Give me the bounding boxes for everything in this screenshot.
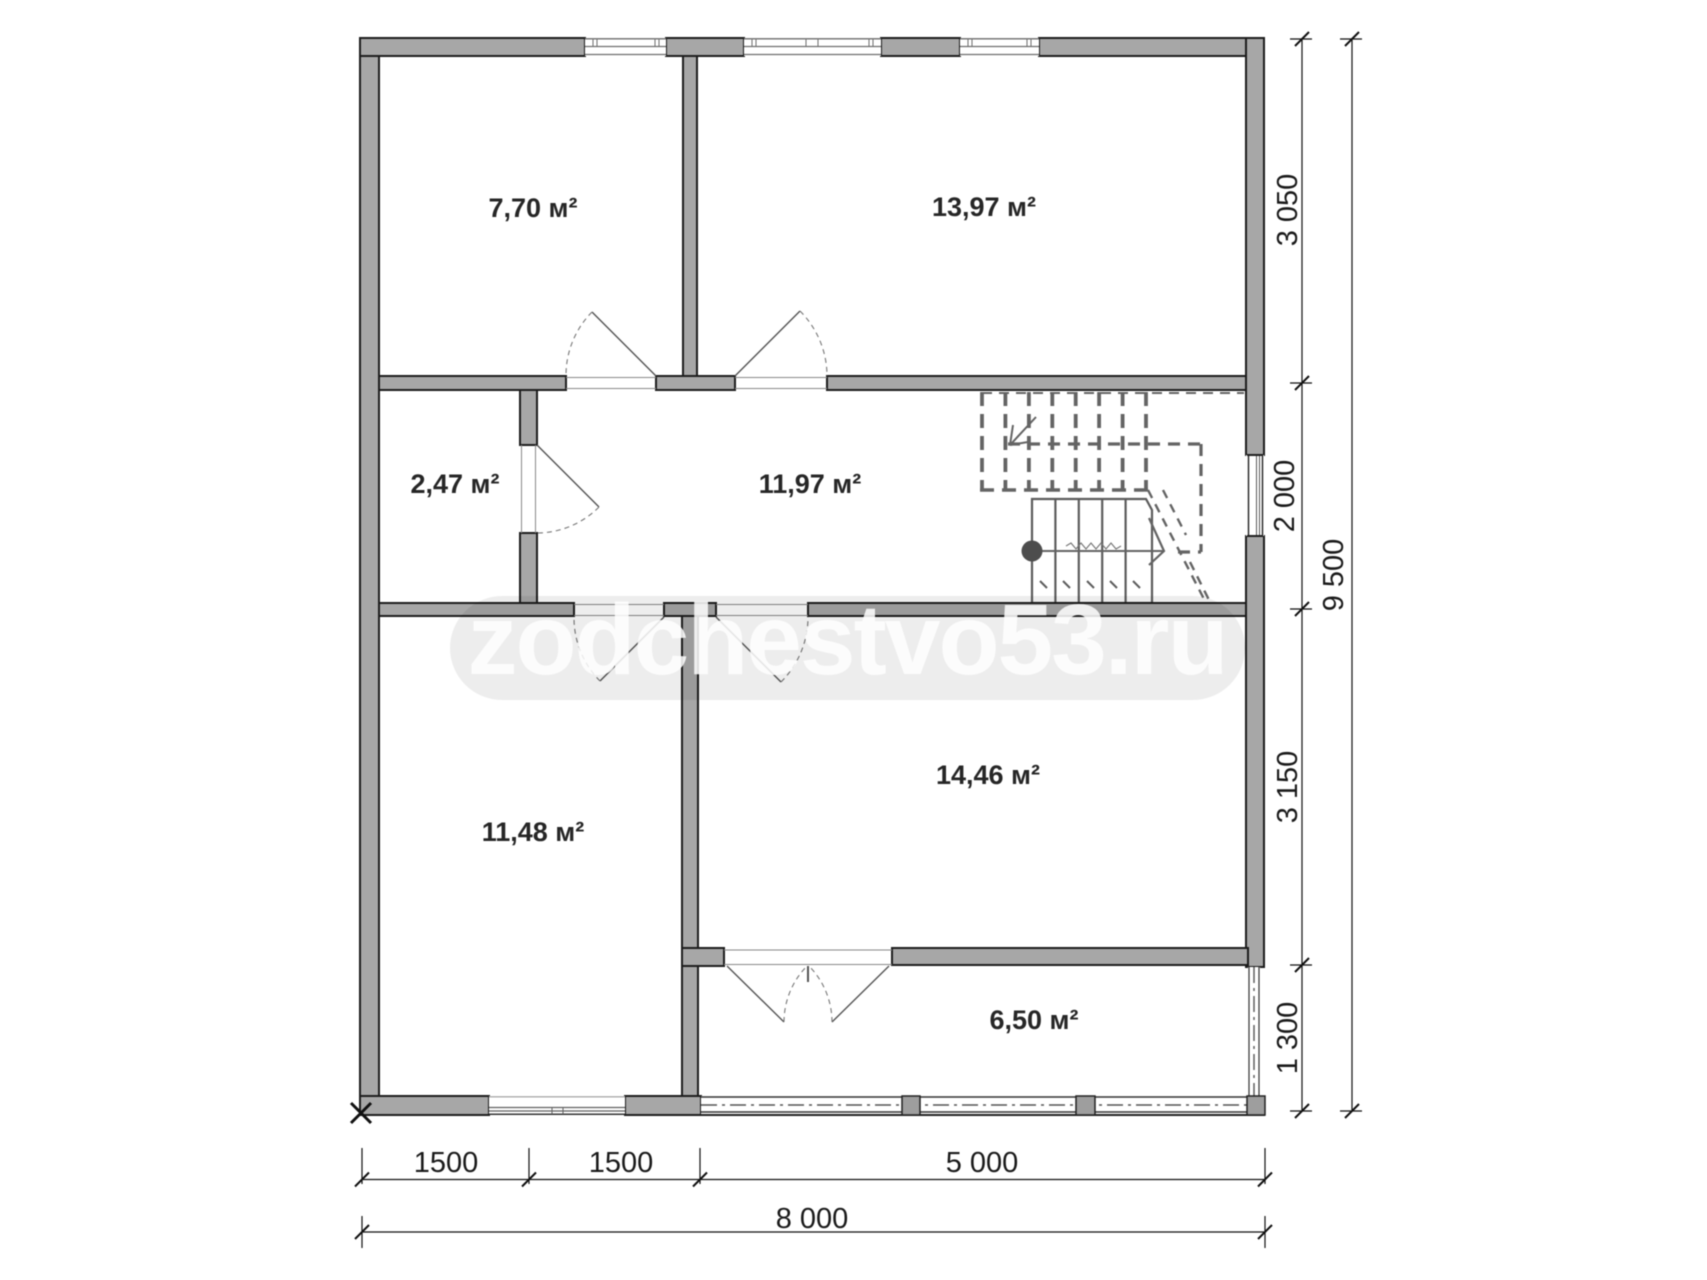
svg-text:8 000: 8 000 [776, 1203, 849, 1235]
svg-text:7,70 м²: 7,70 м² [488, 193, 577, 223]
svg-text:9 500: 9 500 [1318, 539, 1350, 612]
svg-text:3 150: 3 150 [1272, 751, 1304, 824]
svg-text:14,46 м²: 14,46 м² [936, 760, 1040, 790]
svg-text:1500: 1500 [589, 1147, 654, 1179]
svg-text:2,47 м²: 2,47 м² [410, 469, 499, 499]
svg-text:1 300: 1 300 [1272, 1002, 1304, 1075]
svg-text:11,48 м²: 11,48 м² [482, 817, 585, 847]
svg-text:6,50 м²: 6,50 м² [989, 1005, 1078, 1035]
svg-text:zodchestvo53.ru: zodchestvo53.ru [467, 584, 1226, 696]
svg-text:1500: 1500 [414, 1147, 479, 1179]
svg-text:13,97 м²: 13,97 м² [932, 192, 1036, 222]
svg-text:5 000: 5 000 [946, 1147, 1019, 1179]
svg-text:2 000: 2 000 [1269, 460, 1301, 533]
svg-text:3 050: 3 050 [1272, 174, 1304, 247]
svg-text:11,97 м²: 11,97 м² [759, 469, 862, 499]
